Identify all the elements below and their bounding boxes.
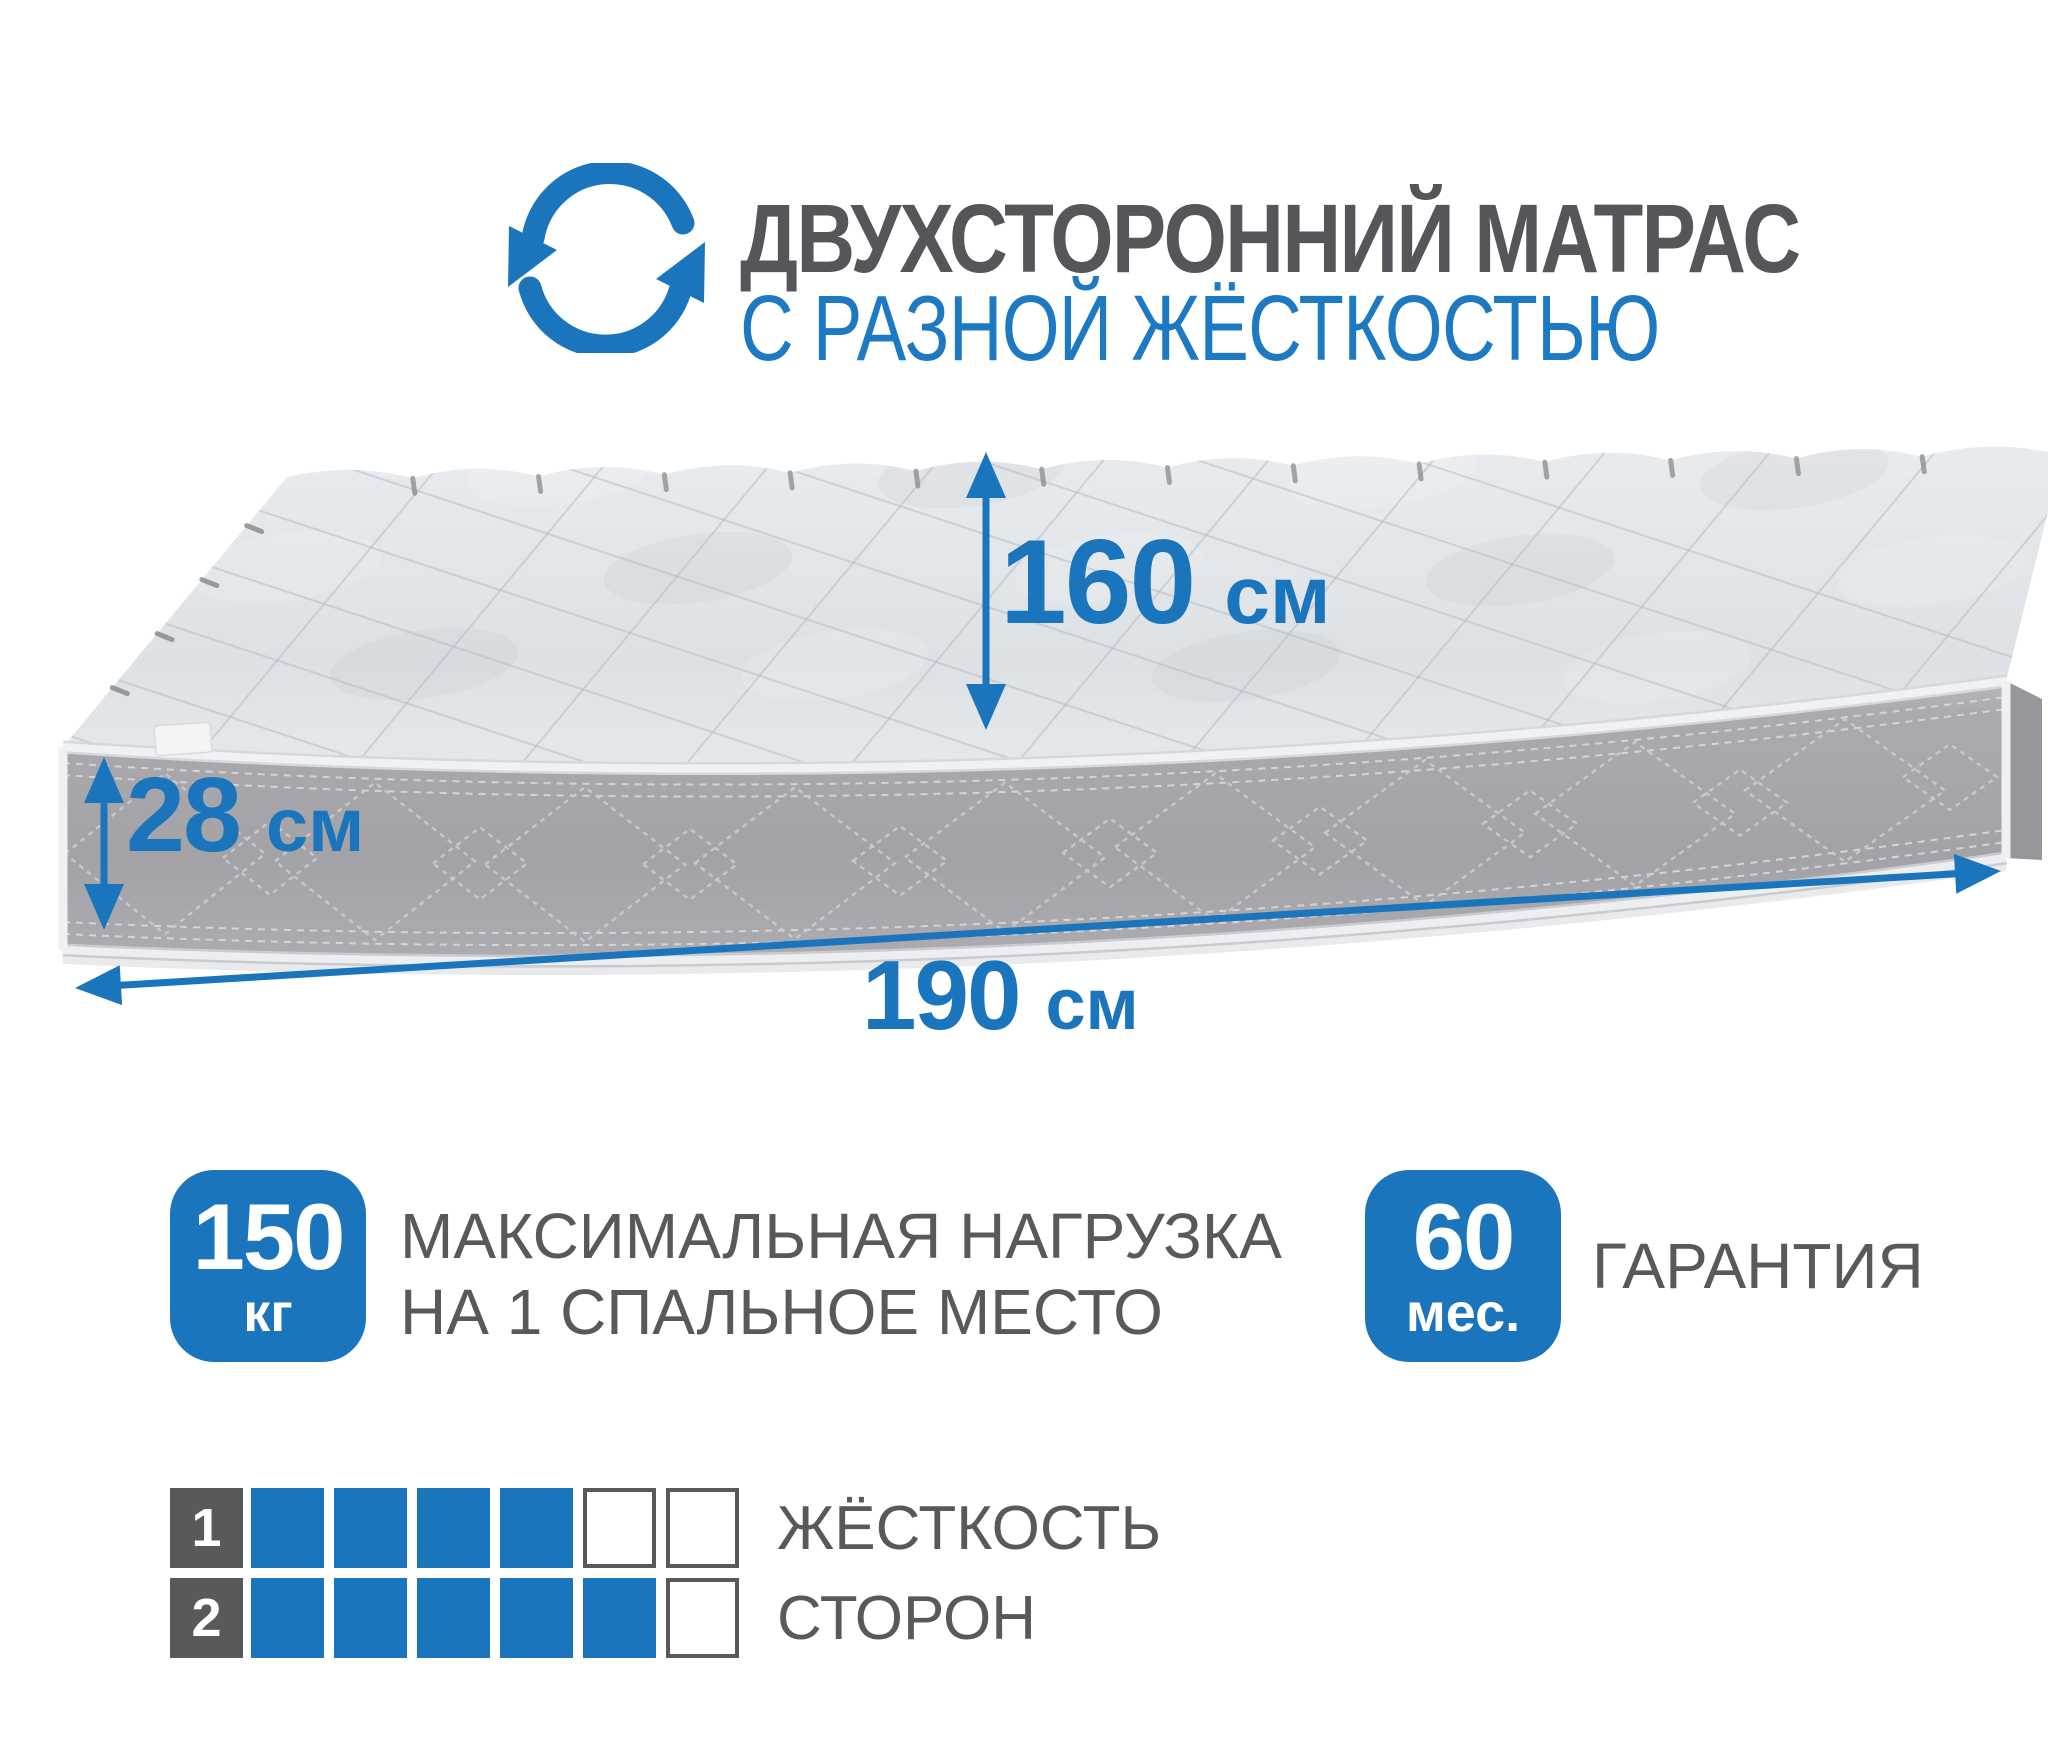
- max-load-label-line2: НА 1 СПАЛЬНОЕ МЕСТО: [400, 1274, 1282, 1350]
- dimension-height-label: 28 см: [126, 762, 364, 868]
- dimension-width-unit: см: [1224, 555, 1330, 637]
- max-load-badge: 150 кг: [170, 1170, 366, 1362]
- firmness-cell-filled: [583, 1578, 656, 1658]
- dimension-height-unit: см: [266, 788, 365, 864]
- firmness-cell-filled: [417, 1578, 490, 1658]
- firmness-row: 1ЖЁСТКОСТЬ: [170, 1488, 1161, 1568]
- firmness-cell-filled: [500, 1488, 573, 1568]
- warranty-value: 60: [1413, 1192, 1514, 1281]
- firmness-cell-filled: [417, 1488, 490, 1568]
- max-load-unit: кг: [243, 1286, 293, 1340]
- firmness-row-label: ЖЁСТКОСТЬ: [777, 1493, 1161, 1564]
- firmness-cell-filled: [251, 1488, 324, 1568]
- warranty-unit: мес.: [1406, 1286, 1520, 1340]
- dimension-height-value: 28: [126, 762, 240, 868]
- firmness-row-index: 2: [170, 1578, 243, 1658]
- firmness-row: 2СТОРОН: [170, 1578, 1161, 1658]
- firmness-cell-filled: [251, 1578, 324, 1658]
- firmness-row-label: СТОРОН: [777, 1583, 1036, 1654]
- dimension-width-label: 160 см: [1000, 522, 1330, 642]
- firmness-scale: 1ЖЁСТКОСТЬ2СТОРОН: [170, 1488, 1161, 1668]
- firmness-cell-empty: [666, 1488, 739, 1568]
- mattress-tag: [154, 722, 212, 756]
- max-load-label-line1: МАКСИМАЛЬНАЯ НАГРУЗКА: [400, 1198, 1282, 1274]
- warranty-label: ГАРАНТИЯ: [1592, 1170, 1924, 1362]
- firmness-cell-filled: [500, 1578, 573, 1658]
- infographic-canvas: ДВУХСТОРОННИЙ МАТРАС С РАЗНОЙ ЖЁСТКОСТЬЮ…: [0, 0, 2048, 1757]
- warranty-badge: 60 мес.: [1365, 1170, 1561, 1362]
- firmness-row-index: 1: [170, 1488, 243, 1568]
- firmness-cell-filled: [334, 1578, 407, 1658]
- max-load-value: 150: [193, 1192, 344, 1281]
- max-load-label: МАКСИМАЛЬНАЯ НАГРУЗКА НА 1 СПАЛЬНОЕ МЕСТ…: [400, 1198, 1282, 1350]
- firmness-cell-empty: [583, 1488, 656, 1568]
- page-subtitle: С РАЗНОЙ ЖЁСТКОСТЬЮ: [740, 275, 1889, 382]
- page-subtitle-text: С РАЗНОЙ ЖЁСТКОСТЬЮ: [740, 275, 1659, 382]
- firmness-cell-empty: [666, 1578, 739, 1658]
- rotation-arrows-icon: [488, 163, 718, 353]
- firmness-cell-filled: [334, 1488, 407, 1568]
- dimension-length-unit: см: [1046, 969, 1139, 1041]
- dimension-length-value: 190: [862, 946, 1020, 1044]
- dimension-length-label: 190 см: [862, 946, 1139, 1044]
- dimension-width-value: 160: [1000, 522, 1194, 642]
